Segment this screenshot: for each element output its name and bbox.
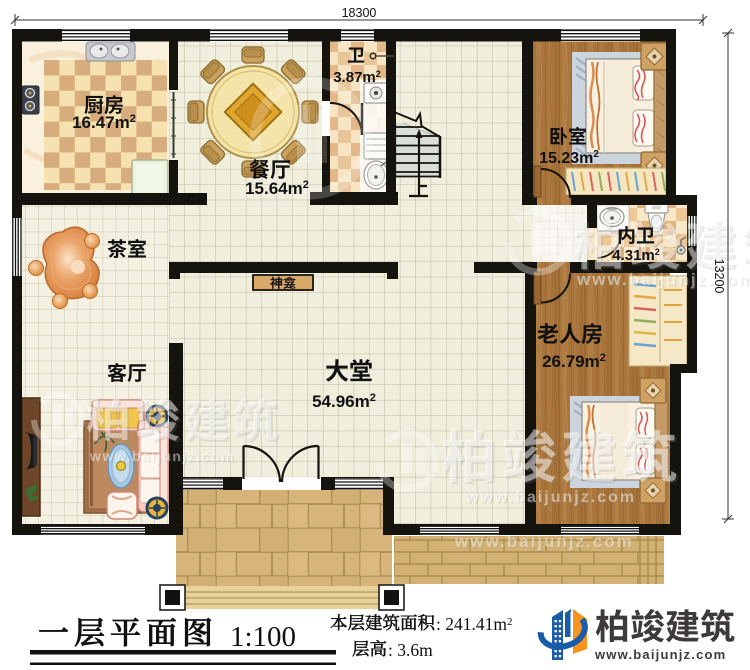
svg-text:www.baijunjz.com: www.baijunjz.com: [454, 532, 634, 551]
svg-text:3.87m2: 3.87m2: [333, 69, 381, 86]
svg-text:www.baijunjz.com: www.baijunjz.com: [594, 647, 726, 662]
svg-text:4.31m2: 4.31m2: [612, 247, 660, 264]
svg-text:15.64m2: 15.64m2: [245, 179, 309, 198]
svg-text:26.79m2: 26.79m2: [542, 352, 606, 371]
svg-text:www.baijunjz.com: www.baijunjz.com: [465, 489, 636, 506]
svg-text:www.baijunjz.com: www.baijunjz.com: [89, 448, 235, 464]
svg-text:1:100: 1:100: [230, 621, 296, 653]
svg-text:54.96m2: 54.96m2: [312, 392, 376, 411]
svg-text:: 241.41m2: : 241.41m2: [436, 614, 512, 634]
svg-text:15.23m2: 15.23m2: [539, 149, 599, 167]
svg-text:: 3.6m: : 3.6m: [388, 640, 433, 660]
svg-text:16.47m2: 16.47m2: [72, 113, 136, 132]
svg-text:13200: 13200: [712, 259, 726, 294]
svg-text:18300: 18300: [342, 6, 377, 20]
